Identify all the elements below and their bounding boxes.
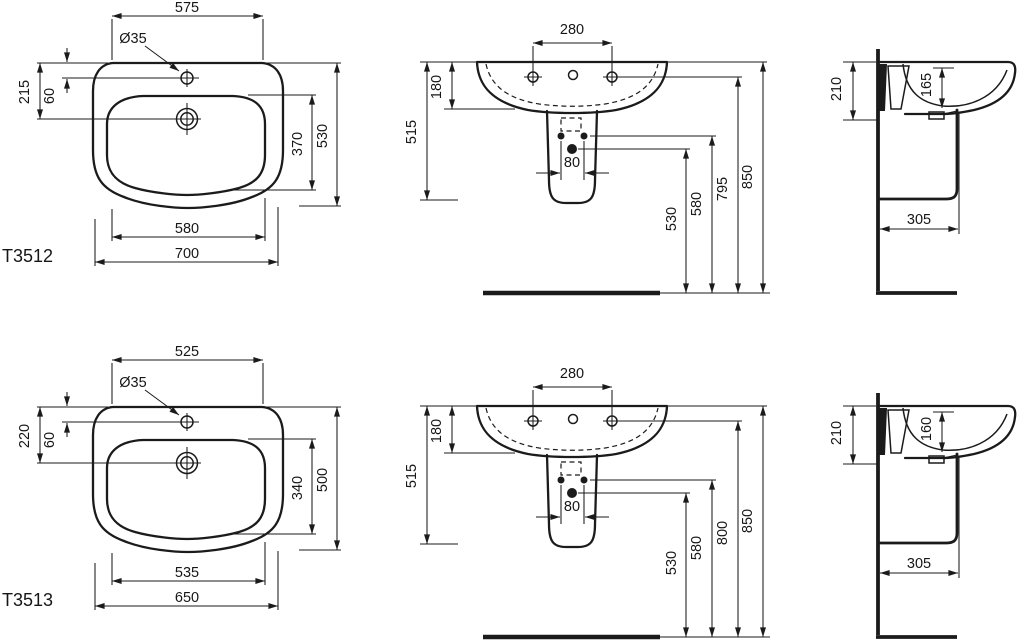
dim-label: 160: [919, 417, 935, 441]
dim-label: 220: [17, 424, 33, 448]
dim-label: 305: [907, 556, 931, 572]
dim-label: 280: [560, 366, 584, 382]
dim-label: 525: [175, 344, 199, 360]
dim-label: 650: [175, 590, 199, 606]
model-code-label: T3513: [2, 590, 53, 610]
t3513-labels: 525 Ø35 220 60 340 500 535 650 T3513 280…: [2, 344, 935, 610]
dim-label: 700: [175, 246, 199, 262]
washbasin-dimension-drawing: 575 Ø35 215 60 370 530 580 700 T3512 280…: [0, 0, 1024, 641]
dim-label: 80: [564, 155, 580, 171]
dim-label: 80: [564, 499, 580, 515]
dim-label: 800: [715, 521, 731, 545]
dim-label: 850: [740, 165, 756, 189]
dim-label: 60: [42, 88, 58, 104]
dim-label: 580: [689, 536, 705, 560]
dim-label: 515: [404, 120, 420, 144]
dim-label: 530: [664, 207, 680, 231]
washbasin-dimension-drawing-page: 575 Ø35 215 60 370 530 580 700 T3512 280…: [0, 0, 1024, 641]
dim-label: 280: [560, 22, 584, 38]
dim-label: 305: [907, 212, 931, 228]
dim-label: 60: [42, 432, 58, 448]
dim-label: 535: [175, 565, 199, 581]
dim-label: 580: [689, 192, 705, 216]
row-model-t3512: 575 Ø35 215 60 370 530 580 700 T3512 280…: [2, 0, 1015, 293]
dim-label: 370: [290, 132, 306, 156]
dim-label: 575: [175, 0, 199, 16]
dim-label: 580: [175, 221, 199, 237]
dim-label: 515: [404, 464, 420, 488]
dim-label: 180: [429, 75, 445, 99]
dim-label: 340: [290, 476, 306, 500]
tap-hole-diameter-label: Ø35: [119, 31, 146, 47]
dim-label: 850: [740, 509, 756, 533]
dim-label: 210: [829, 421, 845, 445]
row-model-t3513: 525 Ø35 220 60 340 500 535 650 T3513 280…: [2, 344, 1015, 637]
dim-label: 795: [715, 177, 731, 201]
dim-label: 180: [429, 419, 445, 443]
dim-label: 165: [919, 73, 935, 97]
dim-label: 210: [829, 77, 845, 101]
dim-label: 215: [17, 80, 33, 104]
tap-hole-diameter-label: Ø35: [119, 375, 146, 391]
dim-label: 530: [664, 551, 680, 575]
dim-label: 530: [315, 124, 331, 148]
t3512-labels: 575 Ø35 215 60 370 530 580 700 T3512 280…: [2, 0, 935, 266]
model-code-label: T3512: [2, 246, 53, 266]
dim-label: 500: [315, 468, 331, 492]
